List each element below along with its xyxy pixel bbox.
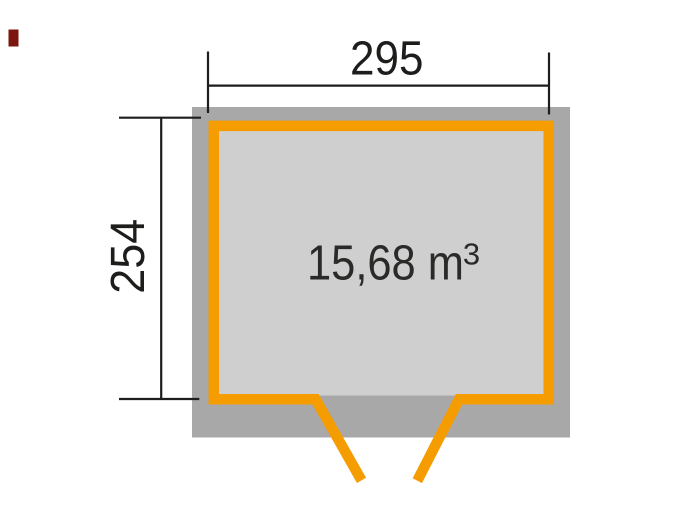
svg-text:295: 295 [350, 33, 424, 86]
svg-text:15,68 m: 15,68 m [307, 237, 464, 291]
svg-text:3: 3 [463, 237, 480, 272]
svg-text:254: 254 [102, 219, 155, 294]
